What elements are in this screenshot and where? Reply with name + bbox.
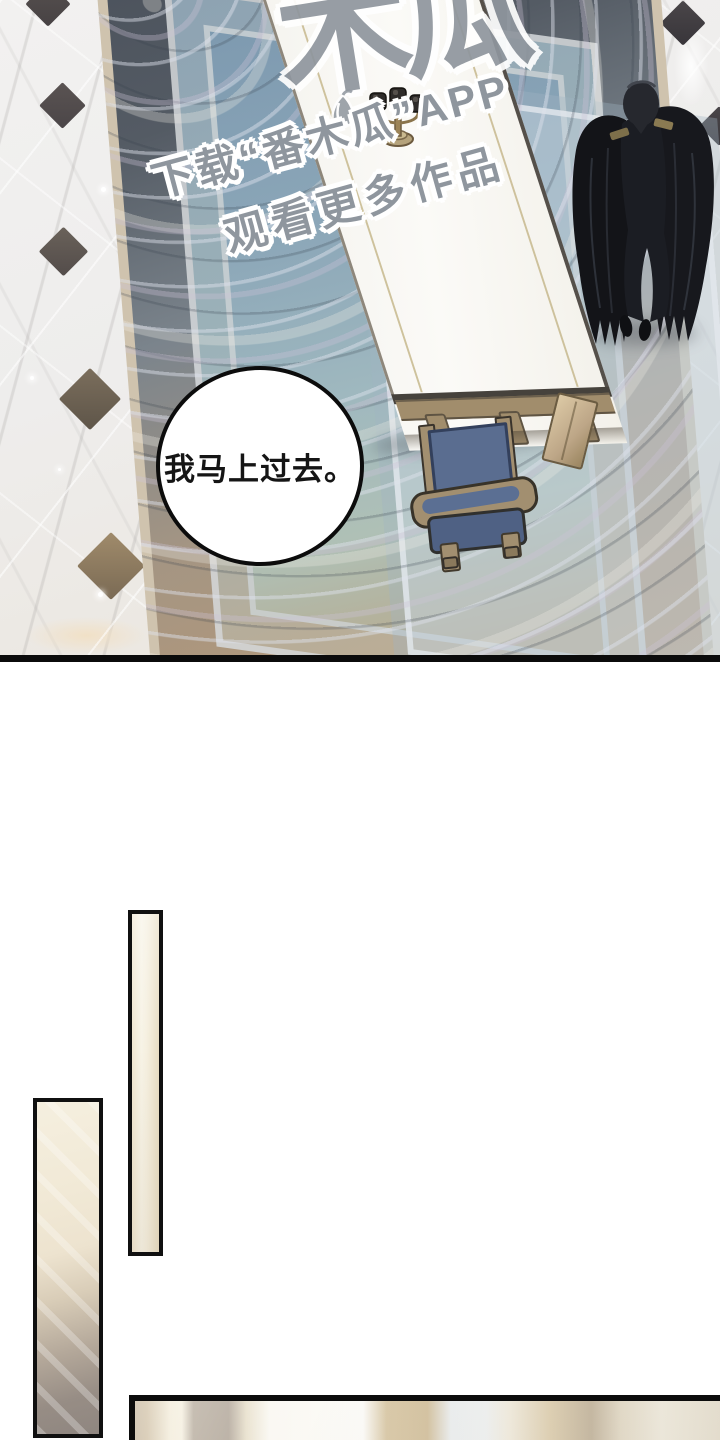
winged-character [552, 58, 720, 368]
floor-sparkle [30, 376, 34, 380]
floor-sparkle [98, 592, 103, 597]
floor-sparkle [101, 187, 106, 192]
speech-bubble: 我马上过去。 [156, 366, 364, 566]
chair-foot [442, 556, 459, 570]
speech-text: 我马上过去。 [164, 444, 356, 489]
inset-panel-marble-column [33, 1098, 103, 1438]
comic-panel-room-overhead: 木瓜 下载“番木瓜”APP 观看更多作品 我马上过去。 [0, 0, 720, 662]
panel-border-line [0, 655, 720, 662]
webtoon-page: 木瓜 下载“番木瓜”APP 观看更多作品 我马上过去。 [0, 0, 720, 1440]
inset-panel-marble-pillar [128, 910, 163, 1256]
marble-wall-panel [129, 1395, 720, 1440]
floor-sparkle [58, 468, 61, 471]
dining-chair [401, 414, 545, 569]
chair-foot [503, 545, 520, 559]
